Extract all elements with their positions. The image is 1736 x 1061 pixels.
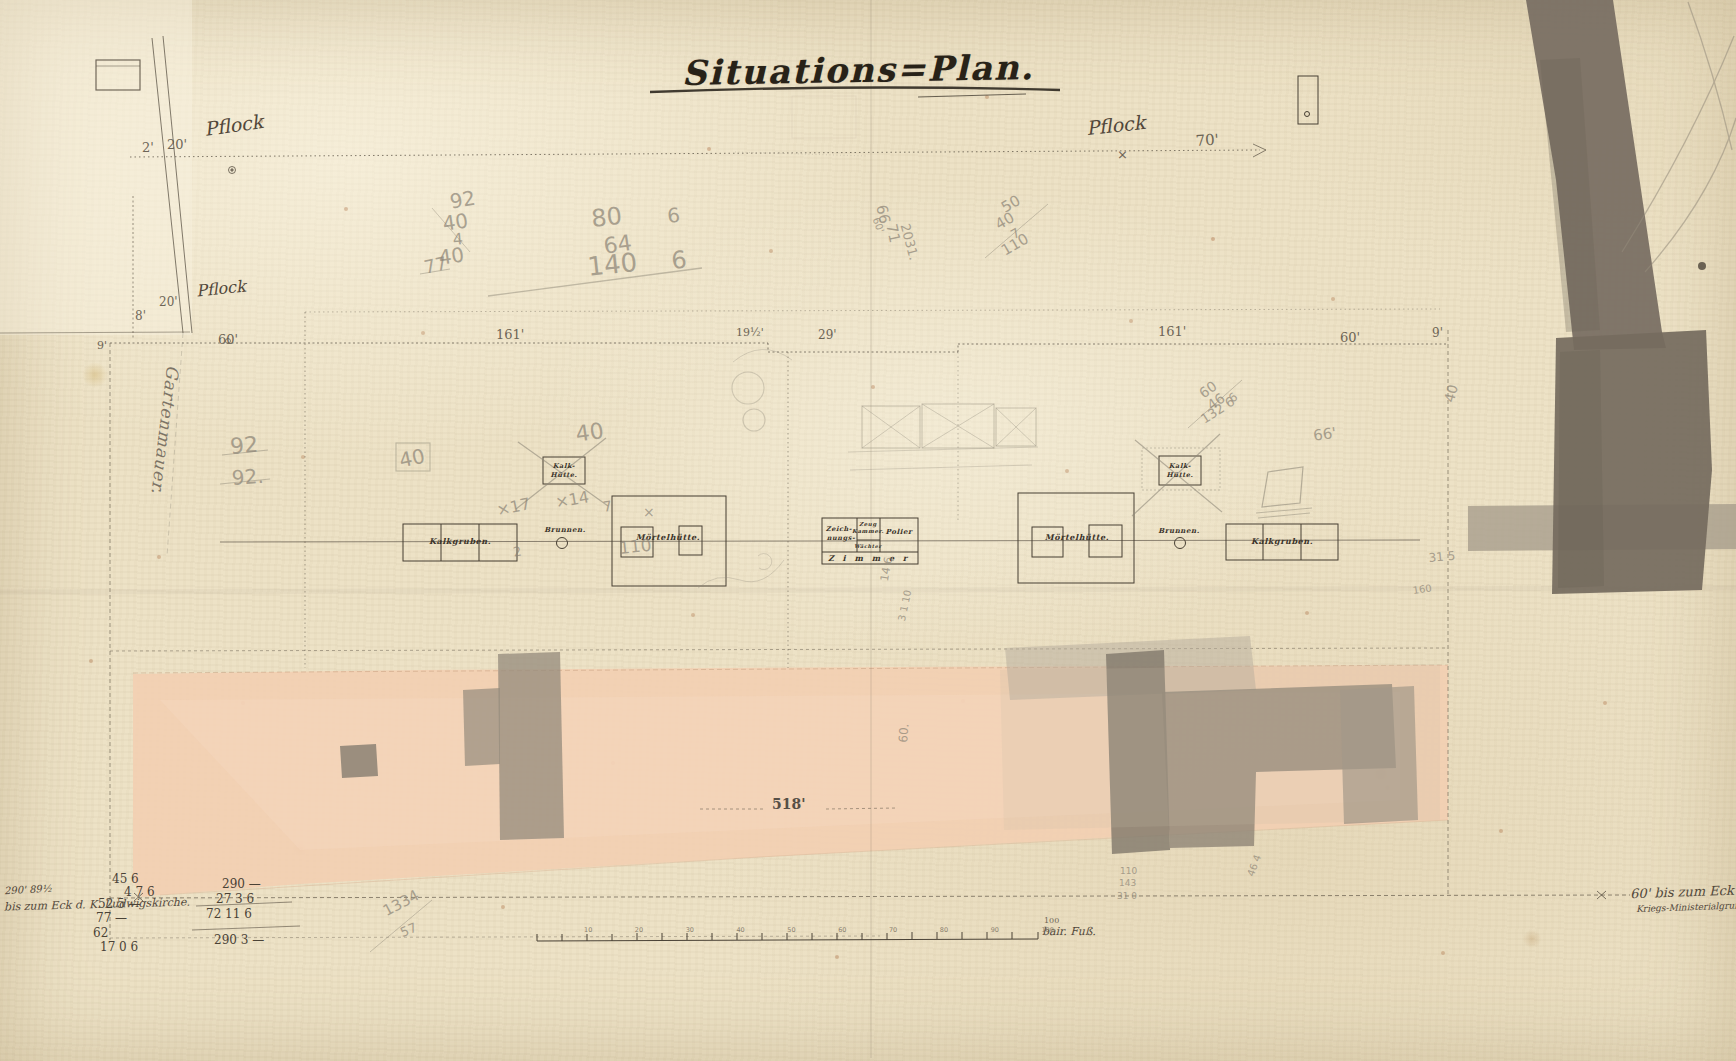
dimension-label: 60' (1340, 330, 1360, 345)
calc-row: 77 — (96, 911, 127, 925)
calc-row: 62 (93, 926, 108, 940)
pencil-note: 140 (586, 247, 639, 282)
pencil-note: 110 (618, 535, 652, 558)
scale-tick: 60 (838, 926, 846, 934)
calc-row: 290 3 — (214, 933, 264, 947)
pflock-left-dim-a: 2' (142, 140, 154, 155)
zeugkammer-label: Kammer. (852, 528, 884, 534)
pflock-right-dist: 70' (1195, 130, 1219, 150)
brunnen-left-well (557, 538, 568, 549)
zimmer-label: Z i m m e r (828, 553, 910, 563)
kalkgruben-left-label: Kalkgruben. (429, 536, 491, 546)
dimension-label: 19½' (736, 326, 764, 339)
zeichnungszimmer-label: Zeich- (826, 525, 852, 533)
scale-tick-numbers: 10 20 30 40 50 60 70 80 90 100 (584, 926, 1054, 934)
dimension-label: 161' (1158, 324, 1186, 339)
pencil-note: 66' (1312, 424, 1337, 445)
pencil-note: 92. (231, 464, 264, 490)
calc-row: 45 6 (112, 872, 139, 886)
pflock-left2-dim-b: 8' (135, 309, 146, 323)
page-title: Situations=Plan. (681, 47, 1034, 93)
calc-row: 290 — (222, 877, 261, 891)
pencil-note: 31 5 (1428, 549, 1456, 565)
brunnen-left-label: Brunnen. (544, 525, 586, 534)
scale-tick: 90 (991, 926, 999, 934)
plan-sheet: Situations=Plan. 2' 20' Pflock 20' Pfloc… (0, 0, 1736, 1061)
pencil-note: 143 (1119, 878, 1136, 888)
pflock-left2-dim: 20' (159, 295, 178, 309)
scale-tick: 50 (787, 926, 795, 934)
kalkgruben-right-label: Kalkgruben. (1251, 536, 1313, 546)
scale-caption-top: 100 (1044, 916, 1059, 925)
narrow-rect-top-right (1298, 76, 1318, 124)
calc-row: 17 0 6 (100, 940, 138, 954)
pencil-note: 60. (896, 723, 912, 743)
kalkhuette-left-label: Hütte. (551, 471, 578, 479)
zeichnungszimmer-label: nungs- (827, 534, 856, 542)
pencil-note: 6 (670, 245, 688, 274)
pencil-note: 80 (590, 202, 623, 233)
dimension-label: 161' (496, 327, 524, 342)
pencil-note: 92 (229, 432, 259, 459)
moertelhuette-right-label: Mörtelhütte. (1045, 532, 1109, 542)
scale-tick: 40 (736, 926, 744, 934)
pencil-note: 6 (666, 203, 681, 228)
scale-tick: 100 (1041, 926, 1053, 934)
dimension-label: 29' (818, 328, 837, 342)
scale-tick: 80 (940, 926, 948, 934)
dimension-label: 9' (1432, 326, 1443, 340)
scale-tick: 10 (584, 926, 592, 934)
scale-tick: 70 (889, 926, 897, 934)
pencil-note: 40 (574, 418, 605, 447)
calc-row: 72 11 6 (206, 907, 252, 921)
kalkhuette-right-label: Hütte. (1167, 471, 1194, 479)
kalkhuette-right-label: Kalk- (1169, 462, 1191, 470)
brunnen-right-label: Brunnen. (1158, 526, 1200, 535)
waechter-label: Wächter (854, 543, 881, 549)
dimension-label: 60' (218, 332, 238, 347)
band-length-label: 518' (772, 796, 806, 812)
brunnen-right-well (1175, 538, 1186, 549)
pencil-note: × (643, 504, 655, 520)
scale-tick: 30 (686, 926, 694, 934)
kalkhuette-left-label: Kalk- (553, 462, 575, 470)
zeugkammer-label: Zeug (859, 521, 877, 527)
calc-row: 52 5 — (98, 897, 141, 911)
pflock-left-dim-b: 20' (167, 137, 187, 152)
scale-tick: 20 (635, 926, 643, 934)
dimension-label: 9' (97, 339, 107, 352)
pflock-right-mark: × (1117, 147, 1128, 162)
pencil-note: 31 0 (1117, 891, 1137, 901)
pencil-note: 110 (1120, 866, 1137, 876)
dark-corner-patches (1468, 0, 1736, 594)
calc-row: 27 3 6 (216, 892, 254, 906)
polier-label: Polier (886, 527, 913, 536)
